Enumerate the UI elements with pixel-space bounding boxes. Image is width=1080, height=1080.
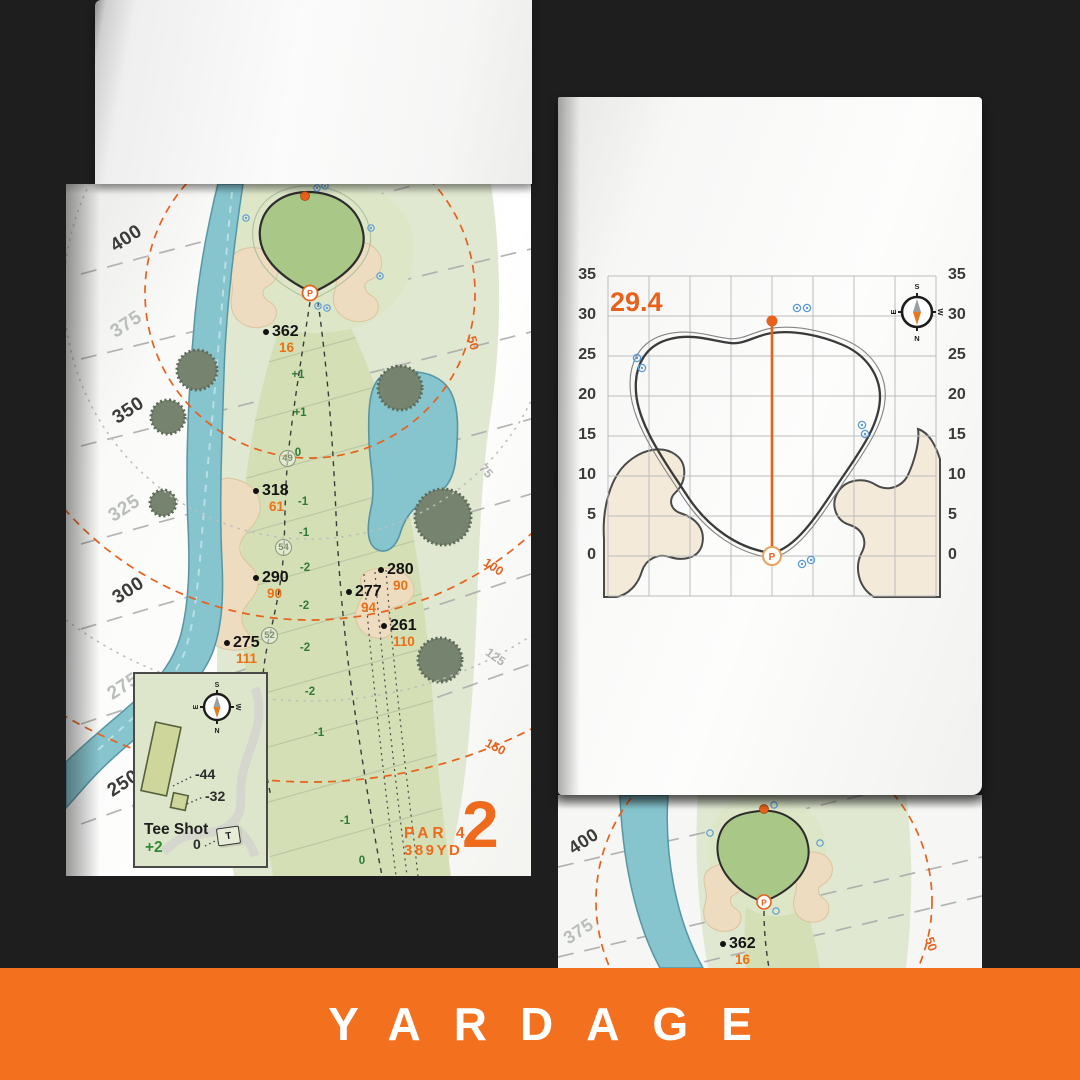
elevation-value: +1 — [291, 369, 304, 381]
svg-text:P: P — [307, 289, 313, 299]
par-label: PAR 4 — [404, 825, 469, 843]
yardage-marker-362: 362 — [272, 323, 299, 341]
elevation-value: +1 — [293, 407, 306, 419]
elevation-value: -1 — [298, 496, 308, 508]
axis-tick-left-10: 10 — [566, 466, 596, 484]
hole-yardage-label: 389YD — [404, 842, 462, 859]
under-map-page: P 400 375 362 16 50 — [558, 795, 982, 968]
elevation-value: -1 — [299, 527, 309, 539]
elevation-value: -2 — [305, 686, 315, 698]
pin-depth-value: 29.4 — [610, 287, 663, 318]
elevation-value: -1 — [340, 815, 350, 827]
svg-text:P: P — [761, 898, 767, 908]
carry-label-94: 94 — [361, 600, 376, 615]
green-detail-page: P — [558, 97, 982, 795]
axis-tick-right-25: 25 — [948, 346, 966, 364]
circled-value-52: 52 — [261, 627, 278, 644]
hole-number: 2 — [462, 791, 499, 857]
compass-south-label: S — [215, 682, 220, 689]
forward-tee-box — [170, 793, 188, 811]
svg-text:P: P — [769, 552, 776, 563]
tee-shot-score: +2 — [145, 839, 163, 857]
pin-depth-line: P — [763, 316, 781, 566]
elevation-value: -2 — [299, 600, 309, 612]
circled-value-49: 49 — [279, 450, 296, 467]
yardage-marker-261: 261 — [390, 617, 417, 635]
axis-tick-left-20: 20 — [566, 386, 596, 404]
axis-tick-left-5: 5 — [566, 506, 596, 524]
axis-tick-right-15: 15 — [948, 426, 966, 444]
yardage-banner: YARDAGE — [0, 968, 1080, 1080]
carry-label-111: 111 — [236, 651, 257, 666]
axis-tick-left-25: 25 — [566, 346, 596, 364]
hole-map-page: P 400 375 350 325 300 275 250 50 75 100 … — [66, 184, 531, 876]
carry-label-16: 16 — [279, 340, 294, 355]
compass-west-label: W — [936, 308, 945, 316]
compass-east-label: E — [193, 704, 200, 709]
axis-tick-right-35: 35 — [948, 266, 966, 284]
green-detail-art: P — [558, 97, 982, 795]
carry-label-90b: 90 — [393, 578, 408, 593]
tee-carry-minus32: -32 — [205, 788, 225, 804]
pin-position-icon: P — [303, 286, 318, 301]
compass-south-label: S — [914, 282, 919, 291]
axis-tick-right-30: 30 — [948, 306, 966, 324]
carry-label-110: 110 — [393, 634, 415, 649]
elevation-value: -1 — [314, 727, 324, 739]
elevation-value: -2 — [300, 642, 310, 654]
flipped-blank-page — [95, 0, 532, 184]
tee-shot-title: Tee Shot — [144, 821, 208, 839]
tee-box — [141, 722, 181, 796]
tee-marker-icon: T — [216, 825, 241, 846]
under-map-art: P — [558, 795, 982, 968]
axis-tick-right-0: 0 — [948, 546, 957, 564]
river — [620, 795, 703, 968]
axis-tick-left-35: 35 — [566, 266, 596, 284]
back-pin-dot — [301, 192, 310, 201]
axis-tick-right-20: 20 — [948, 386, 966, 404]
yardage-marker-277: 277 — [355, 583, 382, 601]
yardage-banner-label: YARDAGE — [328, 997, 785, 1051]
pin-position-icon: P — [757, 895, 771, 909]
elevation-value: -2 — [300, 562, 310, 574]
back-pin-dot — [760, 805, 769, 814]
compass-north-label: N — [914, 334, 919, 343]
carry-label-90a: 90 — [267, 586, 282, 601]
yardage-marker-280: 280 — [387, 561, 414, 579]
axis-tick-left-30: 30 — [566, 306, 596, 324]
compass-west-label: W — [234, 704, 241, 711]
axis-tick-left-0: 0 — [566, 546, 596, 564]
carry-label-16: 16 — [735, 952, 750, 967]
yardage-marker-290: 290 — [262, 569, 289, 587]
yardage-marker-275: 275 — [233, 634, 260, 652]
inset-compass-icon: S N E W — [193, 682, 241, 735]
axis-tick-right-10: 10 — [948, 466, 966, 484]
compass-north-label: N — [214, 728, 219, 735]
compass-east-label: E — [889, 309, 898, 314]
axis-tick-left-15: 15 — [566, 426, 596, 444]
tee-carry-minus44: -44 — [195, 766, 215, 782]
carry-label-61: 61 — [269, 499, 284, 514]
elevation-value: 0 — [359, 855, 365, 867]
tee-shot-inset: S N E W -44 -32 0 Tee Shot +2 T — [133, 672, 268, 868]
yardage-marker-318: 318 — [262, 482, 289, 500]
circled-value-54: 54 — [275, 539, 292, 556]
yardage-marker-362: 362 — [729, 935, 756, 953]
axis-tick-right-5: 5 — [948, 506, 957, 524]
green-compass-icon: S N E W — [889, 282, 945, 343]
